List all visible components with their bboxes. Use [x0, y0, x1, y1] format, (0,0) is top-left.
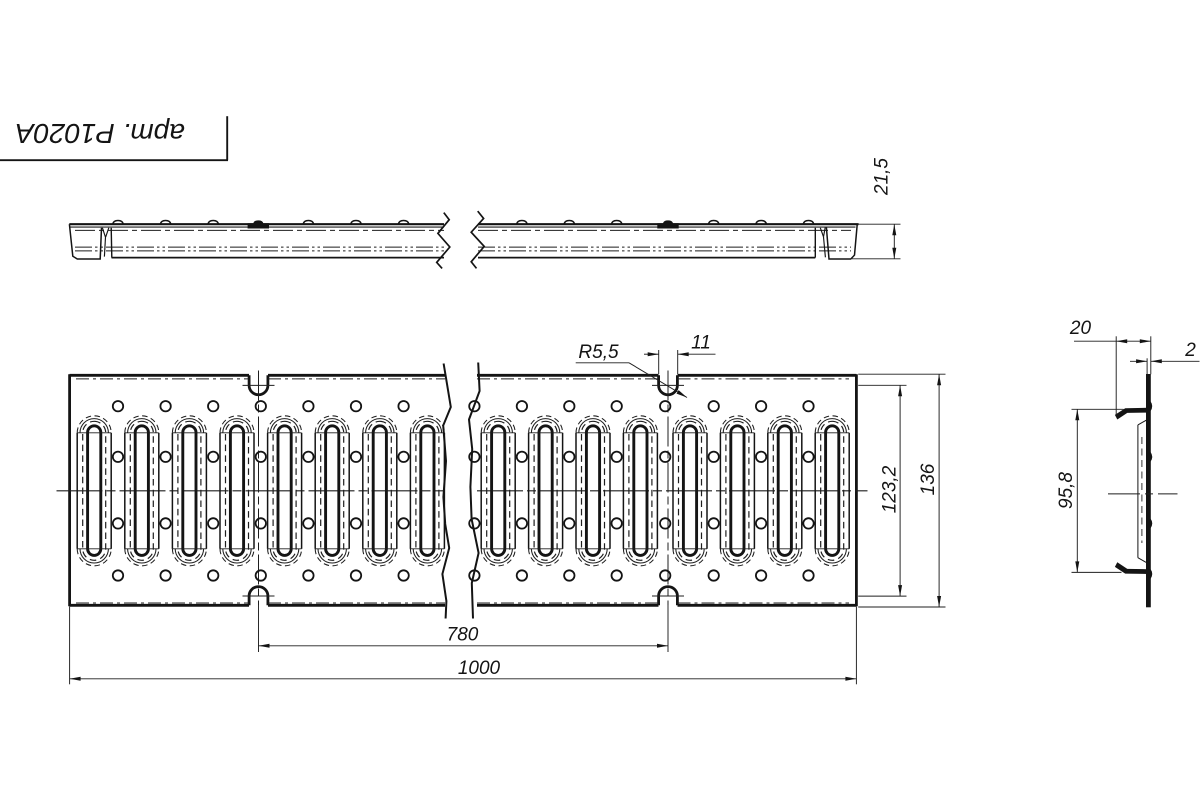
svg-text:11: 11: [691, 333, 711, 354]
svg-text:apm. P1020A: apm. P1020A: [15, 118, 185, 149]
svg-text:1000: 1000: [458, 658, 501, 679]
svg-text:123,2: 123,2: [879, 465, 900, 513]
svg-text:R5,5: R5,5: [578, 342, 619, 363]
svg-text:780: 780: [447, 625, 479, 646]
svg-text:20: 20: [1069, 318, 1092, 339]
svg-text:21,5: 21,5: [872, 158, 893, 196]
svg-text:2: 2: [1184, 340, 1196, 361]
svg-text:136: 136: [918, 463, 939, 495]
svg-text:95,8: 95,8: [1056, 472, 1077, 509]
